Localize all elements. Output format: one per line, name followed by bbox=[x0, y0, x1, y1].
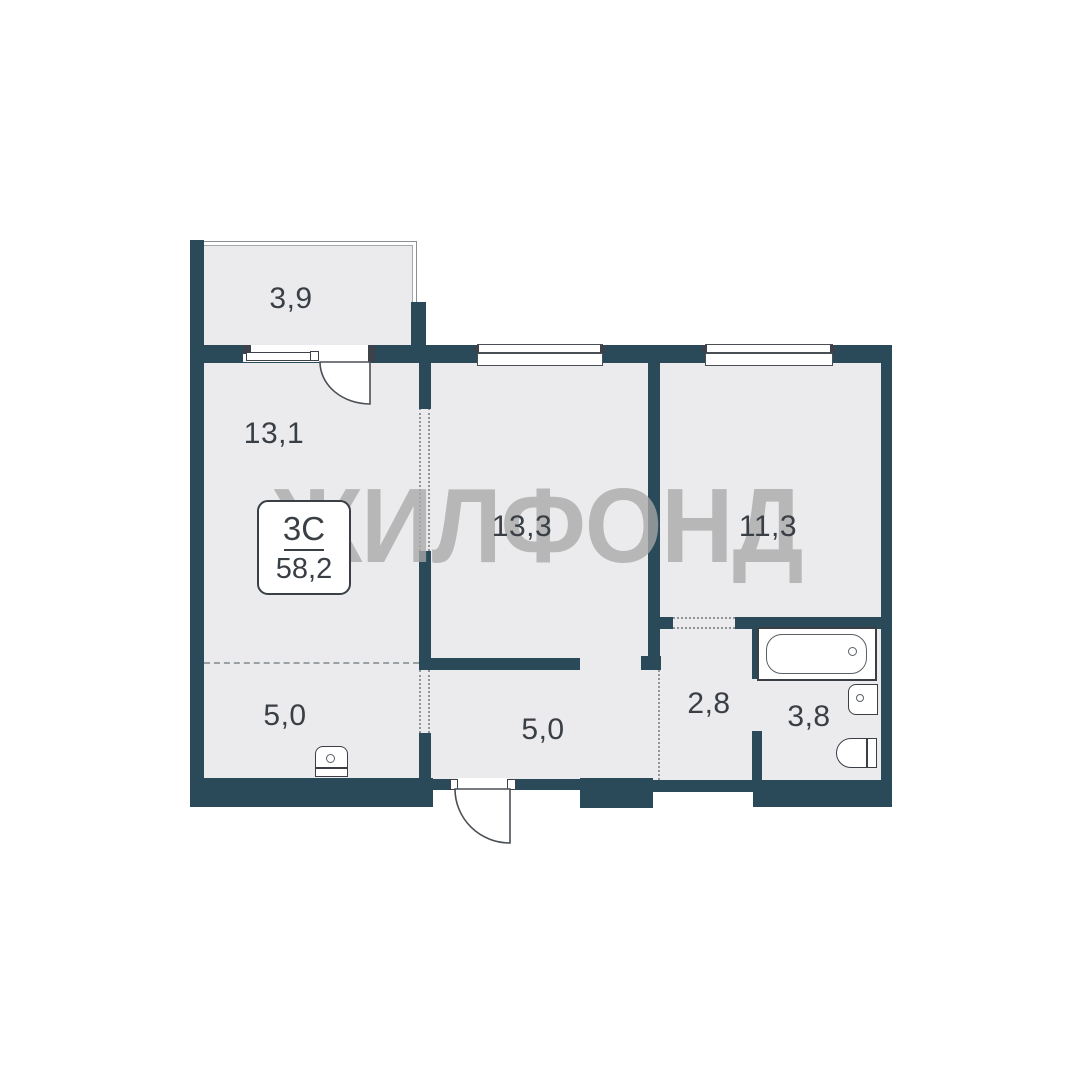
wall-bottom-left bbox=[190, 778, 433, 807]
entrance-opening bbox=[457, 778, 508, 790]
wall-corridor-stub bbox=[648, 617, 673, 629]
wall-bottom-door-right bbox=[515, 779, 580, 790]
badge-divider bbox=[284, 549, 324, 551]
room-label-11-3: 11,3 bbox=[739, 510, 797, 544]
entrance-door-arc bbox=[455, 789, 510, 843]
window-room-133-frame bbox=[478, 352, 602, 354]
room-label-2-8: 2,8 bbox=[687, 687, 730, 721]
dotted-opening-left-a bbox=[419, 670, 421, 733]
window-133-jamb-left bbox=[474, 345, 479, 353]
bathtub-drain bbox=[848, 647, 857, 656]
wall-bath-left-lower bbox=[752, 731, 762, 780]
toilet-tank-line bbox=[866, 739, 868, 767]
window-room-113 bbox=[705, 344, 833, 366]
room-label-5-0-entry: 5,0 bbox=[521, 713, 564, 747]
room-label-balcony: 3,9 bbox=[269, 282, 312, 316]
wall-bottom-corridor bbox=[653, 780, 753, 792]
entrance-jamb-right bbox=[507, 779, 516, 790]
window-room-133 bbox=[477, 344, 603, 366]
room-label-3-8: 3,8 bbox=[787, 700, 830, 734]
apartment-type-label: 3С bbox=[283, 512, 325, 545]
sink-base-line bbox=[316, 767, 347, 769]
entrance-jamb-left bbox=[450, 779, 458, 790]
washbasin-drain bbox=[856, 694, 864, 702]
wall-bottom-door-left bbox=[433, 779, 450, 790]
wall-133-113-foot bbox=[641, 656, 661, 670]
dotted-opening-113-a bbox=[673, 617, 735, 619]
balcony-door-jamb bbox=[368, 345, 375, 362]
room-label-5-0-left: 5,0 bbox=[263, 699, 306, 733]
wall-partition-131-top bbox=[419, 362, 431, 409]
balcony-window-sill-cap bbox=[310, 351, 319, 361]
toilet bbox=[836, 738, 877, 768]
dotted-entry-corridor bbox=[658, 670, 660, 780]
window-113-jamb-left bbox=[702, 345, 707, 353]
floor-plan: 3,9 13,1 13,3 11,3 2,8 3,8 5,0 5,0 3С 58… bbox=[0, 0, 1080, 1080]
wall-133-bottom bbox=[419, 658, 580, 670]
room-label-13-1: 13,1 bbox=[244, 417, 304, 451]
sink-drain bbox=[326, 754, 335, 763]
room-label-13-3: 13,3 bbox=[492, 510, 552, 544]
window-room-113-frame bbox=[706, 352, 832, 354]
apartment-badge: 3С 58,2 bbox=[257, 500, 351, 595]
dotted-opening-113-b bbox=[673, 627, 735, 629]
wall-bottom-bathroom bbox=[753, 780, 892, 807]
window-113-jamb-right bbox=[830, 345, 835, 353]
dotted-opening-left-b bbox=[428, 670, 430, 733]
wall-left bbox=[190, 240, 204, 807]
wall-balcony-right bbox=[411, 302, 426, 345]
wall-entry-left bbox=[419, 733, 431, 780]
wall-bottom-chunk bbox=[580, 778, 653, 808]
apartment-total-area: 58,2 bbox=[276, 555, 332, 584]
wall-right bbox=[881, 345, 892, 807]
balcony-window-sill bbox=[246, 352, 316, 361]
window-133-jamb-right bbox=[600, 345, 605, 353]
dashed-zone-divider bbox=[204, 662, 419, 664]
